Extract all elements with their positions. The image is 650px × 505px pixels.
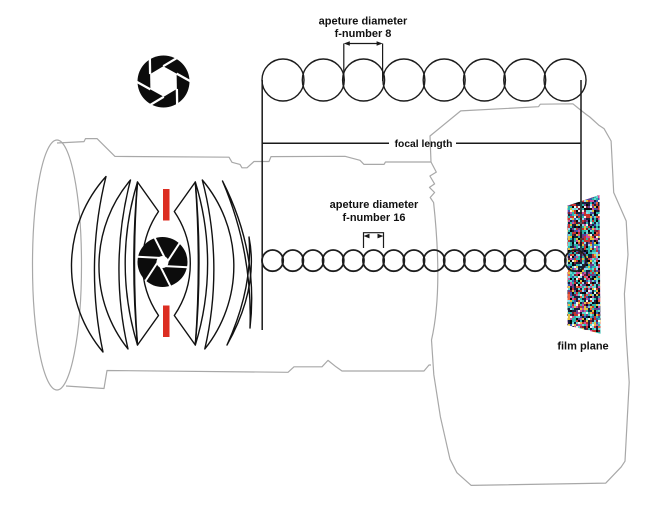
svg-text:apeture diameter: apeture diameter	[319, 16, 408, 28]
svg-text:f-number 8: f-number 8	[335, 28, 392, 40]
svg-text:apeture diameter: apeture diameter	[330, 199, 419, 211]
svg-text:film plane: film plane	[557, 341, 608, 353]
svg-text:f-number 16: f-number 16	[343, 212, 406, 224]
svg-text:focal length: focal length	[395, 139, 453, 150]
